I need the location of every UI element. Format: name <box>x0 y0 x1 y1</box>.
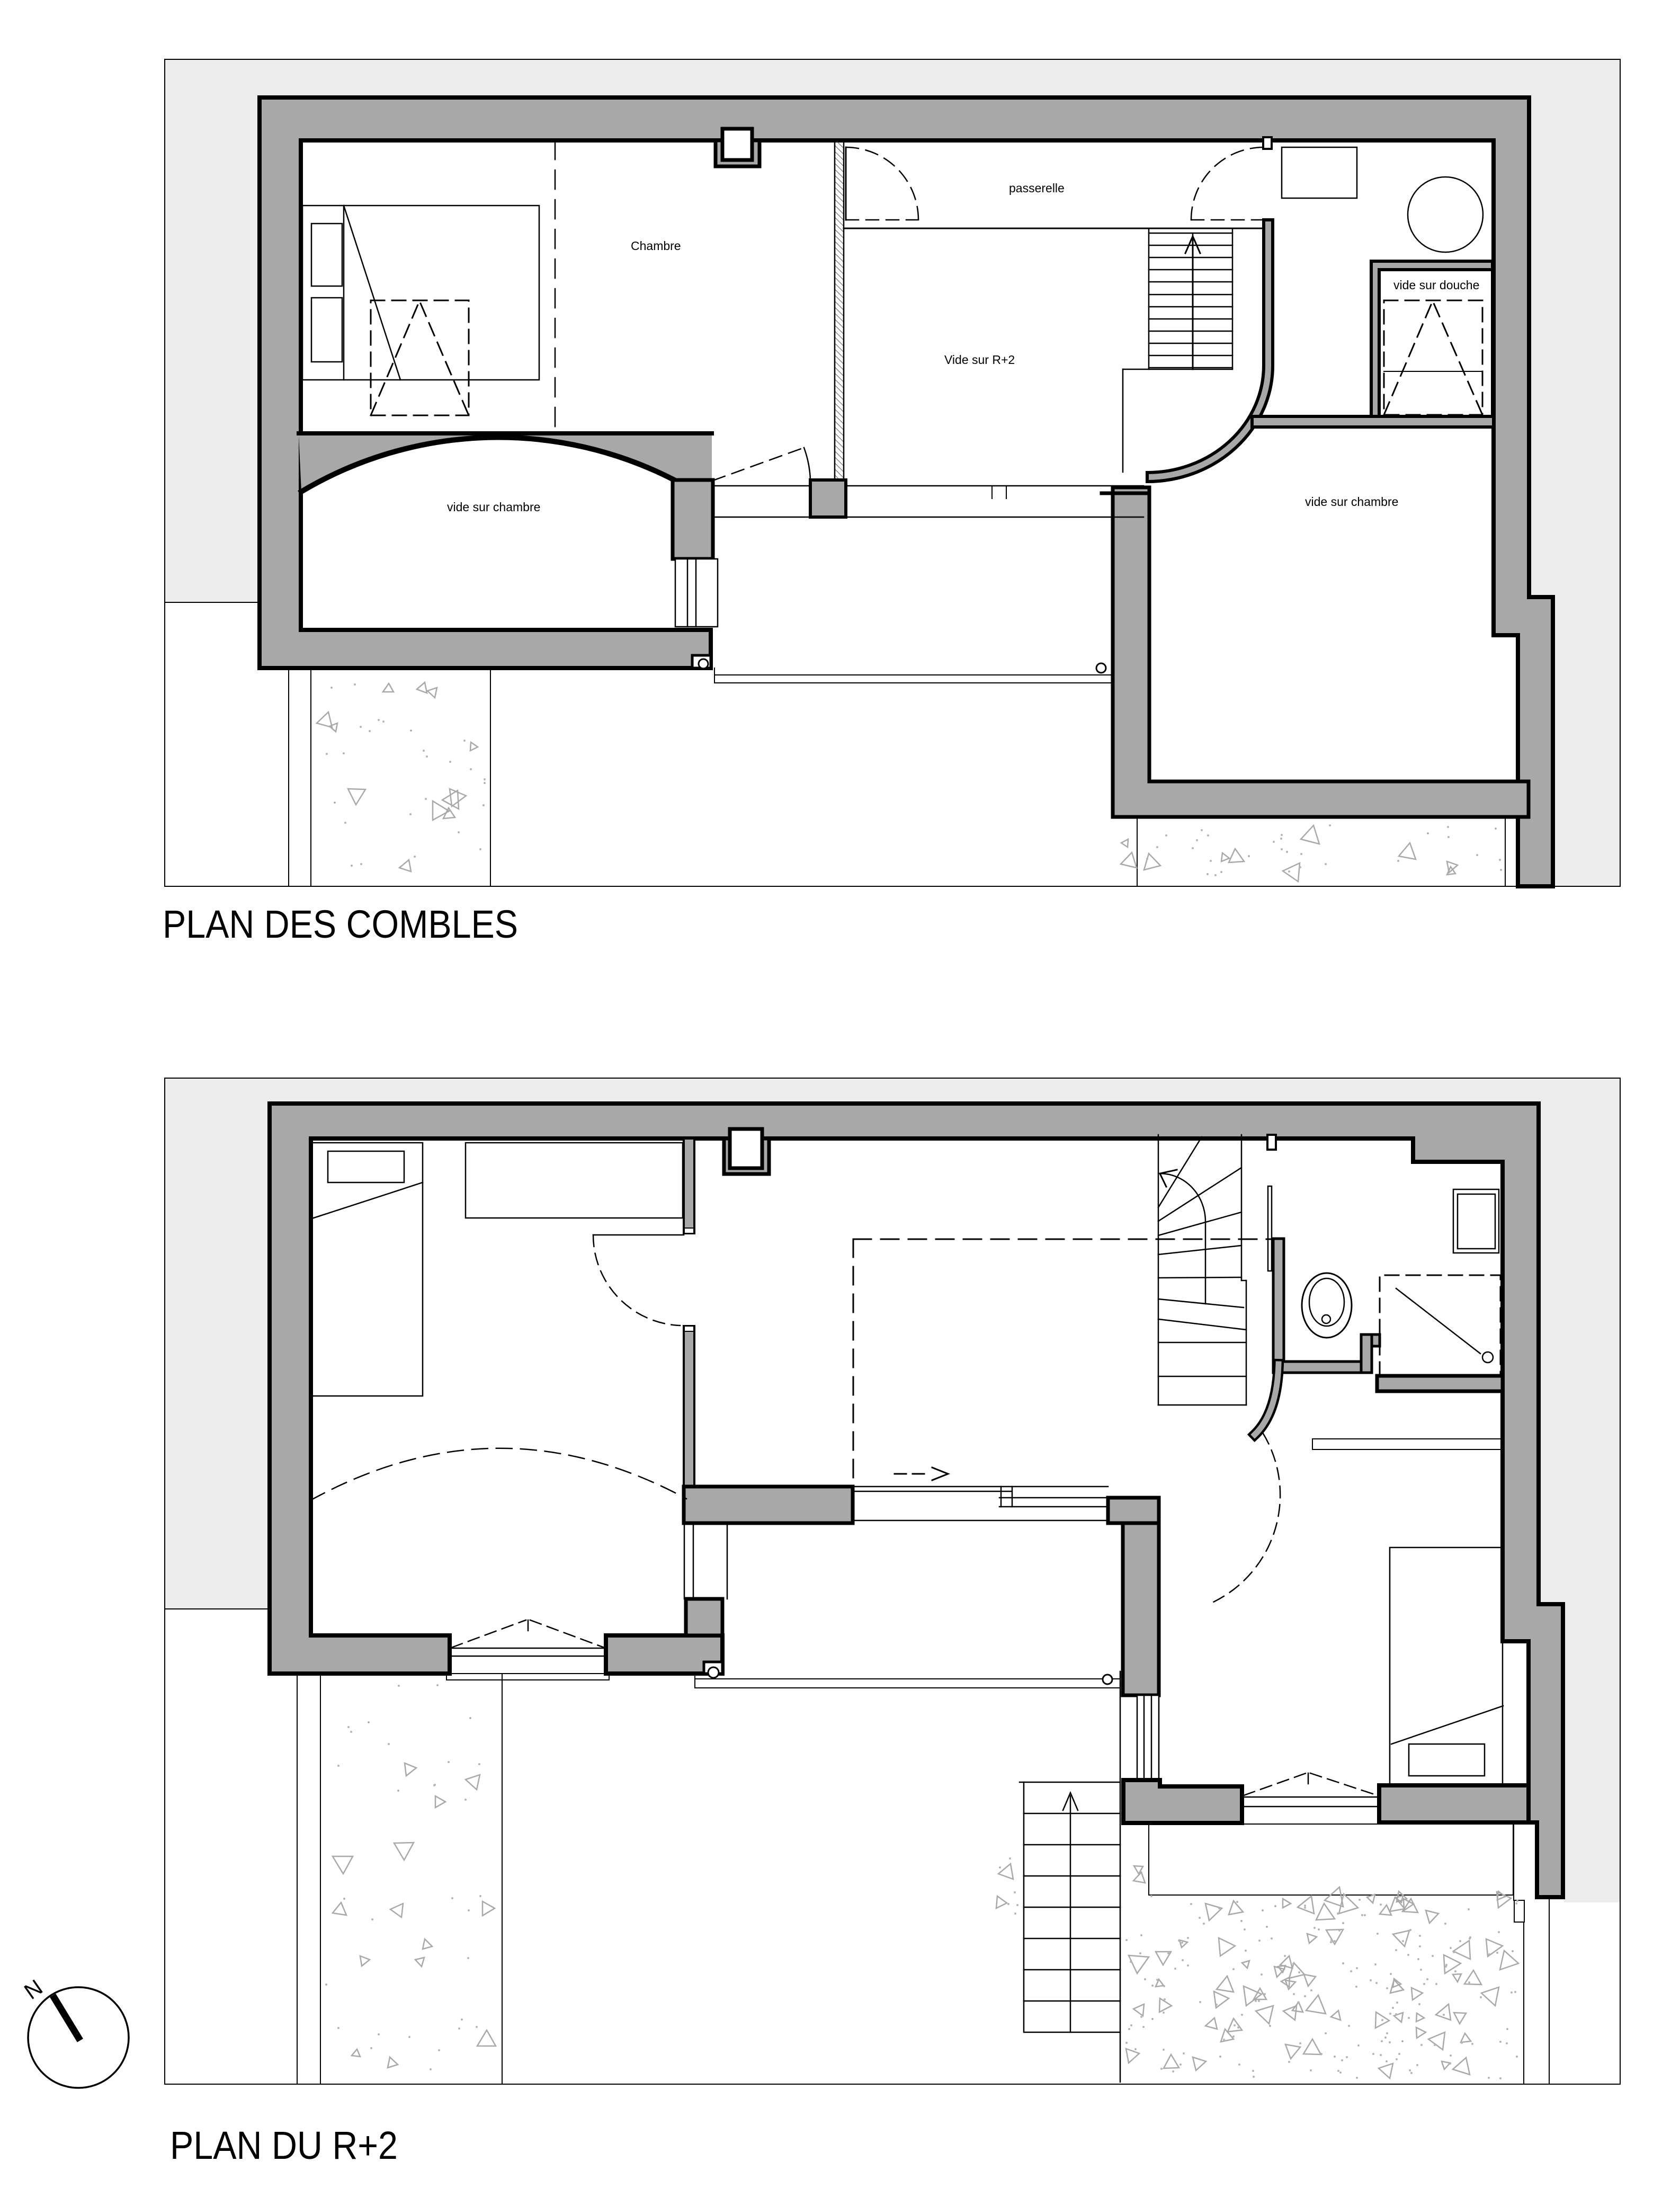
svg-text:passerelle: passerelle <box>1009 181 1065 195</box>
svg-text:PLAN DES COMBLES: PLAN DES COMBLES <box>163 902 518 946</box>
svg-text:vide sur chambre: vide sur chambre <box>447 500 540 514</box>
svg-text:vide sur douche: vide sur douche <box>1393 278 1479 292</box>
svg-text:Vide sur R+2: Vide sur R+2 <box>944 353 1015 367</box>
svg-text:PLAN DU R+2: PLAN DU R+2 <box>170 2123 398 2167</box>
svg-text:vide sur chambre: vide sur chambre <box>1305 495 1398 509</box>
svg-text:Chambre: Chambre <box>631 239 681 253</box>
